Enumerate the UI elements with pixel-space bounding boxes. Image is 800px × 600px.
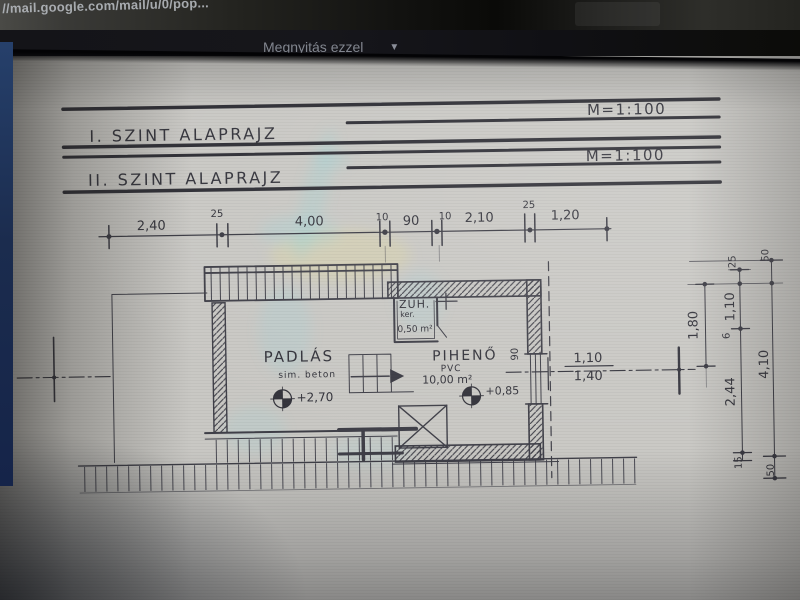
dim-label: 1,10 [723, 292, 738, 321]
level-marker [459, 384, 483, 408]
wall-opening-label: 90 [510, 348, 521, 361]
dim-label: 2,44 [723, 377, 738, 406]
level-marker [270, 387, 294, 411]
open-with-button[interactable]: Megnyitás ezzel ▼ [263, 36, 399, 58]
room-finish: sim. beton [278, 370, 336, 381]
document-viewer[interactable]: M=1:100 I. SZINT ALAPRAJZ M=1:100 II. SZ… [0, 56, 800, 600]
dim-label: 1,40 [574, 369, 603, 384]
centerline-left [17, 377, 113, 379]
section-dashed-line [548, 262, 551, 478]
dim-label: 50 [766, 464, 777, 477]
chimney-x-box [399, 405, 448, 448]
screen-edge-strip [0, 42, 13, 486]
dim-label: 15 [733, 456, 744, 469]
chrome-highlight [575, 2, 660, 26]
dim-label: 25 [522, 200, 535, 211]
room-area: 0,50 m² [397, 324, 433, 335]
dim-label: 25 [211, 209, 224, 220]
level-value: +0,85 [485, 384, 519, 398]
open-with-label: Megnyitás ezzel [263, 39, 363, 55]
scale-label: M=1:100 [587, 100, 667, 119]
window-symbol [525, 354, 548, 404]
dim-label: 1,10 [573, 351, 602, 366]
dim-label: 1,80 [686, 311, 701, 340]
browser-chrome: //mail.google.com/mail/u/0/pop... [0, 0, 800, 30]
dim-label: 25 [727, 255, 738, 268]
entrance-steps [78, 433, 637, 493]
dim-label: 10 [439, 211, 452, 222]
dim-label: 2,40 [137, 219, 166, 234]
level-value: +2,70 [296, 390, 333, 405]
dim-label: 1,20 [551, 208, 580, 223]
dim-label: 4,10 [757, 350, 772, 379]
room-name: PADLÁS [264, 346, 335, 366]
room-area: 10,00 m² [422, 373, 472, 387]
dim-label: 4,00 [295, 214, 324, 229]
dim-label: 50 [760, 249, 771, 262]
stair-band [204, 264, 398, 301]
address-url[interactable]: //mail.google.com/mail/u/0/pop... [2, 0, 209, 16]
floor-plan-walls [75, 260, 636, 493]
title-level-1: I. SZINT ALAPRAJZ [89, 124, 277, 146]
room-finish: ker. [400, 310, 415, 319]
dim-label: 90 [403, 214, 420, 229]
dim-label: 2,10 [465, 211, 494, 226]
dim-label: 10 [376, 212, 389, 223]
title-level-2: II. SZINT ALAPRAJZ [88, 168, 283, 190]
chevron-down-icon: ▼ [389, 42, 399, 53]
scanned-floorplan: M=1:100 I. SZINT ALAPRAJZ M=1:100 II. SZ… [0, 56, 800, 600]
direction-arrow [390, 369, 404, 383]
room-piheno-labels: PIHENŐ PVC 10,00 m² +0,85 [422, 345, 520, 409]
dim-label: 6 [722, 333, 733, 340]
title-block: M=1:100 I. SZINT ALAPRAJZ M=1:100 II. SZ… [63, 99, 720, 192]
room-name: PIHENŐ [432, 345, 498, 364]
room-padlas-labels: PADLÁS sim. beton +2,70 [264, 346, 337, 411]
dimension-chain-right: 25 50 1,80 1,10 6 2,44 4,10 15 50 [685, 249, 786, 482]
window-dimension-fraction: 1,10 1,40 [565, 351, 614, 385]
